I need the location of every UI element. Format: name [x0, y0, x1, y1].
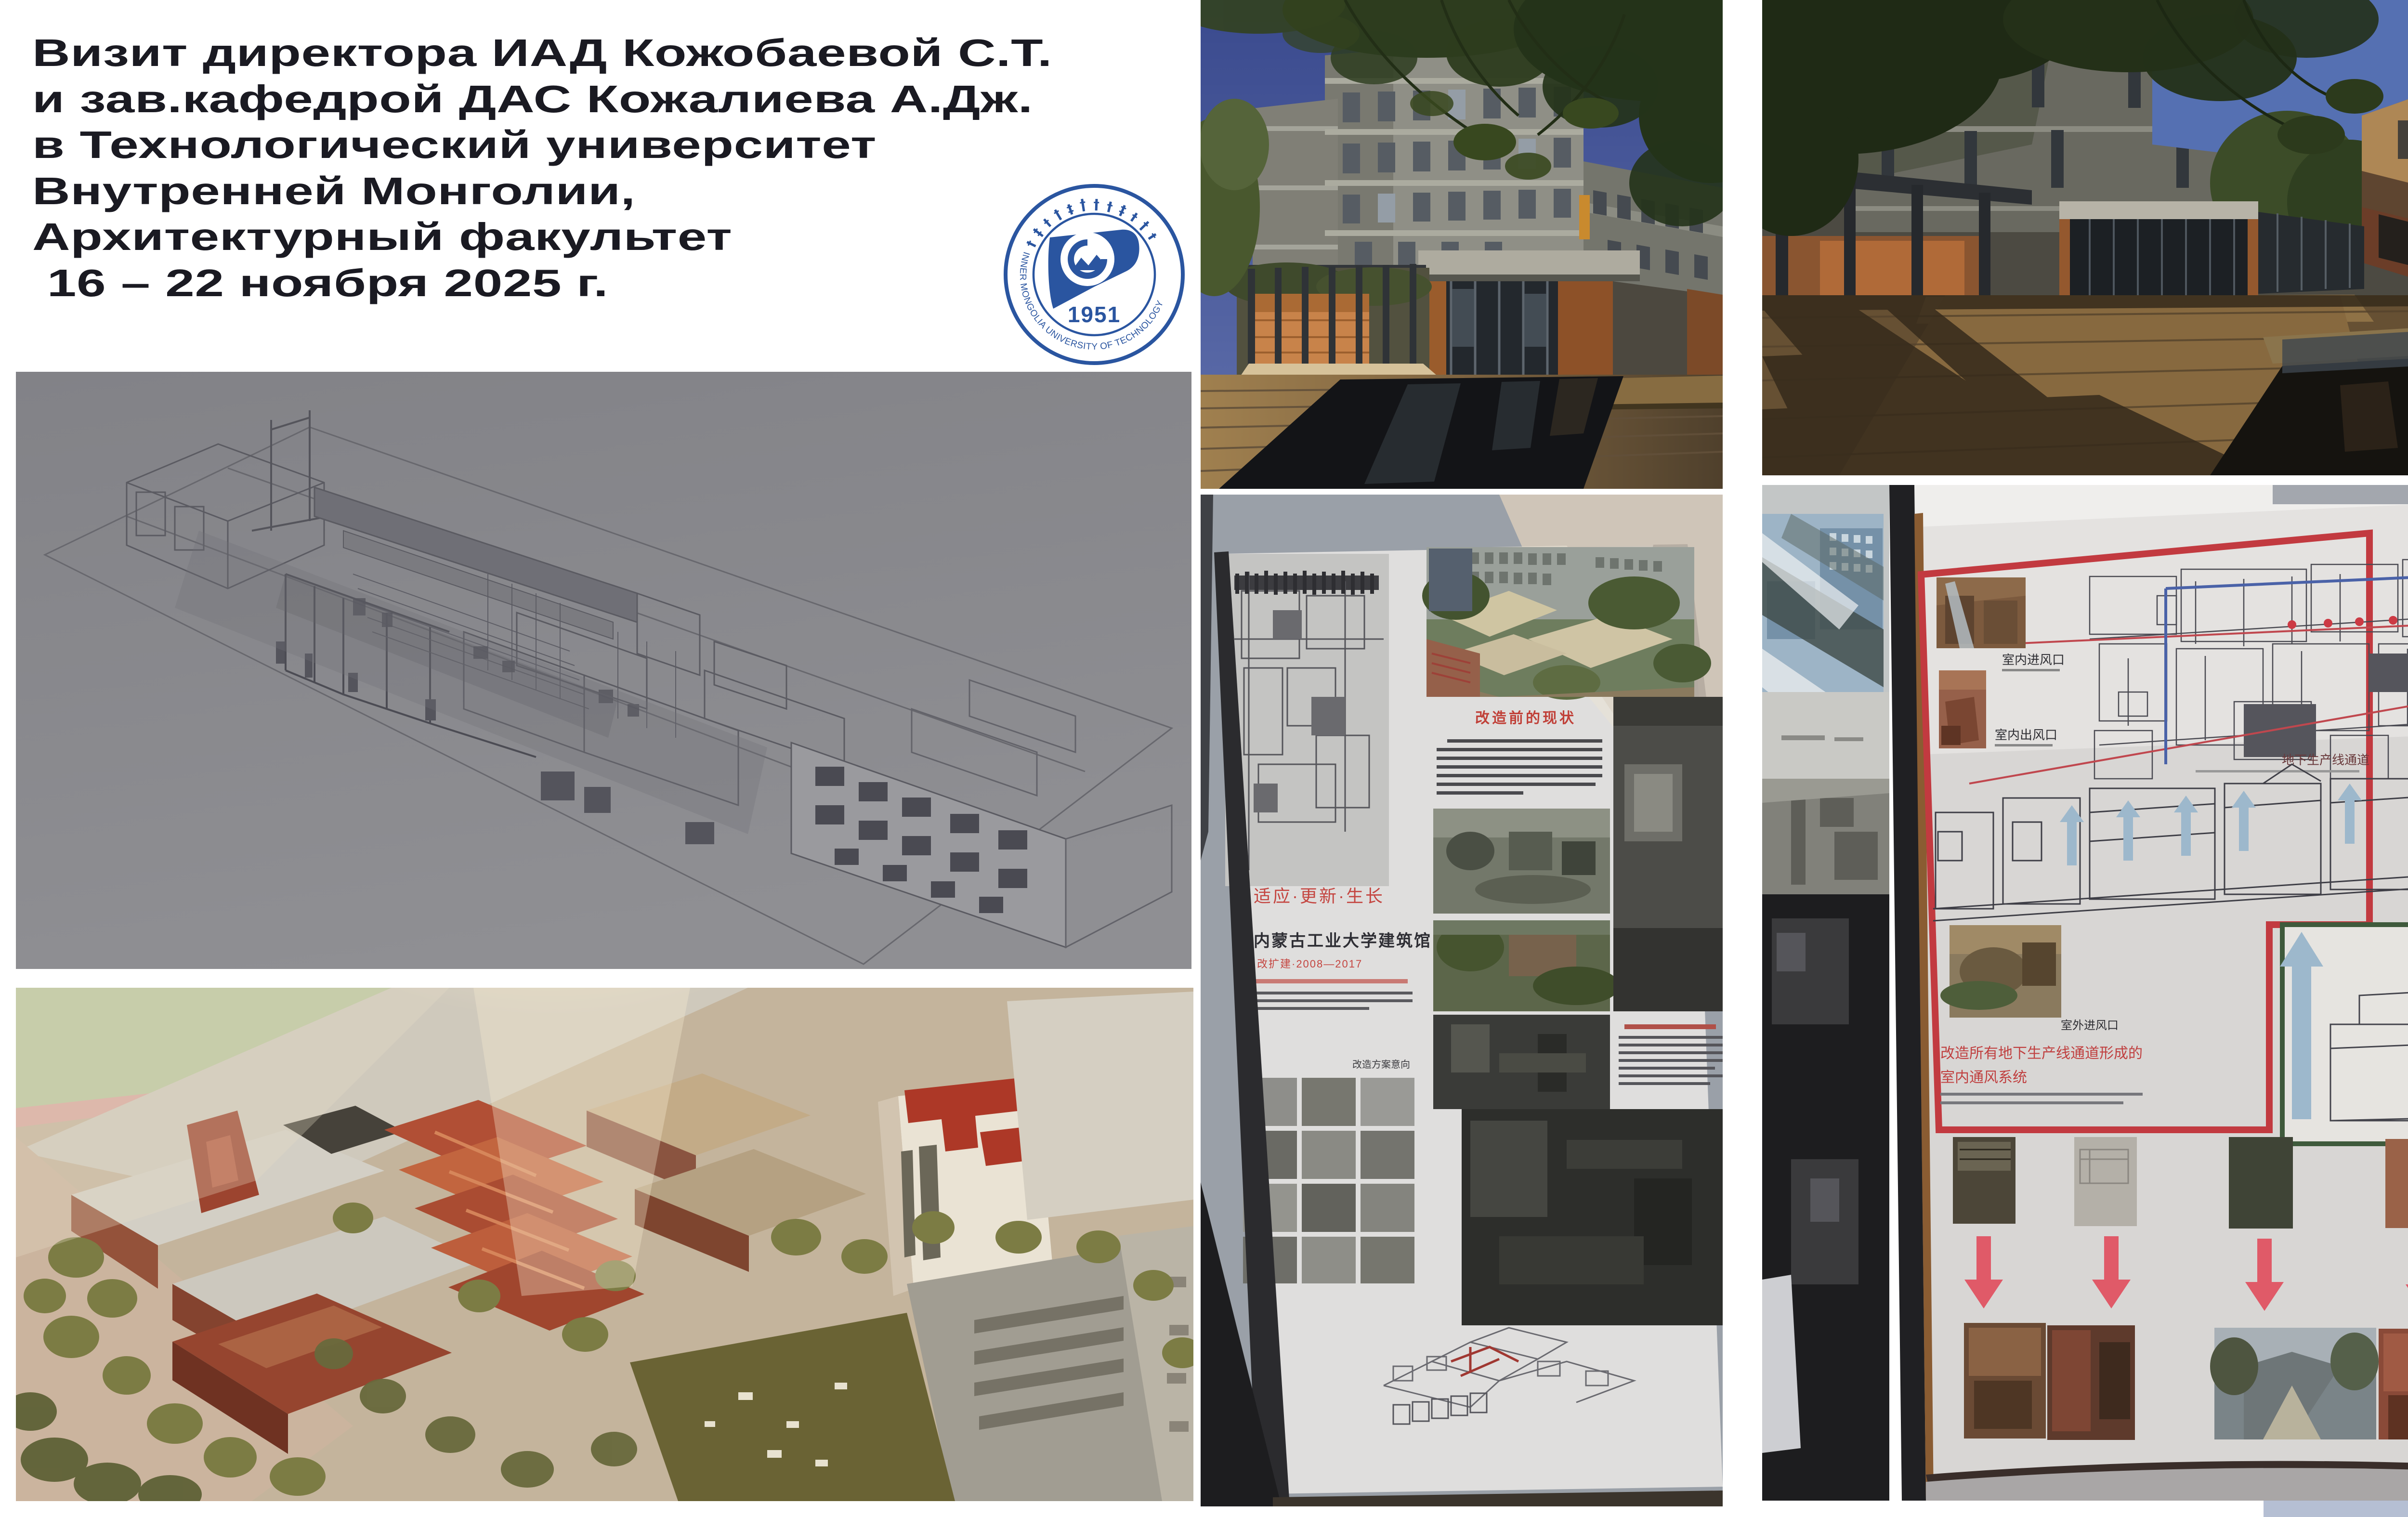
svg-text:1951: 1951	[1068, 302, 1121, 327]
svg-text:室内出风口: 室内出风口	[1995, 728, 2057, 742]
svg-text:内蒙古工业大学建筑馆: 内蒙古工业大学建筑馆	[1254, 931, 1432, 950]
svg-text:改造前的现状: 改造前的现状	[1475, 710, 1576, 726]
svg-text:适应·更新·生长: 适应·更新·生长	[1254, 886, 1385, 906]
svg-text:室外进风口: 室外进风口	[2061, 1019, 2119, 1032]
svg-text:改造方案意向: 改造方案意向	[1352, 1059, 1410, 1070]
svg-text:室内通风系统: 室内通风系统	[1940, 1070, 2027, 1085]
svg-text:室内进风口: 室内进风口	[2002, 653, 2065, 667]
svg-text:改造所有地下生产线通道形成的: 改造所有地下生产线通道形成的	[1940, 1046, 2143, 1061]
svg-text:改扩建·2008—2017: 改扩建·2008—2017	[1257, 958, 1362, 970]
svg-text:地下生产线通道: 地下生产线通道	[2282, 753, 2369, 767]
